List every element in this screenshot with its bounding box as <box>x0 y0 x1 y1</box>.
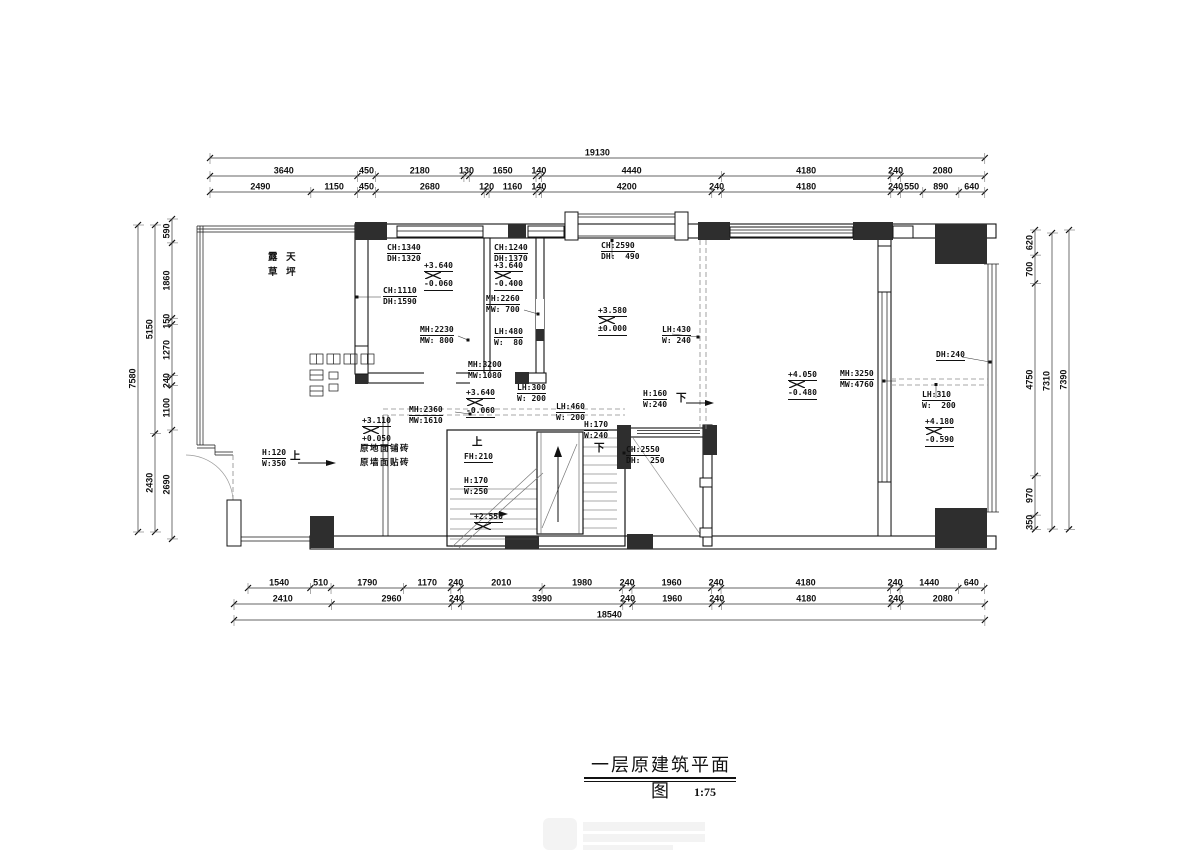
dim-value: 550 <box>904 182 919 192</box>
dim-value: 120 <box>479 182 494 192</box>
dim-value: 2010 <box>491 578 511 588</box>
dim-value: 2680 <box>420 182 440 192</box>
dim-value: 640 <box>964 182 979 192</box>
dim-value: 1160 <box>503 182 523 192</box>
dim-value: 1150 <box>324 182 344 192</box>
dim-value: 590 <box>162 223 172 238</box>
stair-stringer <box>537 432 583 534</box>
dim-value: 2490 <box>250 182 270 192</box>
drawing-scale: 1:75 <box>694 785 716 800</box>
dim-value: 7580 <box>128 368 138 388</box>
dim-value: 3990 <box>532 594 552 604</box>
dim-value: 620 <box>1025 235 1035 250</box>
dim-value: 140 <box>531 166 546 176</box>
dim-value: 1980 <box>572 578 592 588</box>
dim-value: 4180 <box>796 182 816 192</box>
dim-value: 18540 <box>597 610 622 620</box>
dim-value: 19130 <box>585 148 610 158</box>
beams-layer <box>383 240 988 430</box>
dim-value: 7310 <box>1042 371 1052 391</box>
dim-value: 1100 <box>162 398 172 418</box>
dim-value: 240 <box>888 578 903 588</box>
dim-chain-left-mid: 51502430 <box>145 222 162 535</box>
dim-chain-top-row1: 364045021801301650140444041802402080 <box>207 166 988 183</box>
dim-value: 4180 <box>796 166 816 176</box>
dim-value: 2180 <box>410 166 430 176</box>
dim-value: 2410 <box>273 594 293 604</box>
dim-value: 5150 <box>145 319 155 339</box>
terrace-railing <box>984 264 999 512</box>
dim-value: 240 <box>448 578 463 588</box>
dim-value: 240 <box>162 373 172 388</box>
dim-value: 4750 <box>1025 370 1035 390</box>
watermark-text-bars <box>583 818 705 854</box>
dim-value: 450 <box>359 182 374 192</box>
dim-chain-right-mid: 7310 <box>1042 230 1059 532</box>
dim-value: 240 <box>888 166 903 176</box>
dim-value: 350 <box>1025 515 1035 530</box>
dim-value: 240 <box>888 182 903 192</box>
dim-chain-bottom-row1: 1540510179011702402010198024019602404180… <box>245 578 987 595</box>
title-underline-thick <box>584 777 736 779</box>
stair-treads-right <box>583 438 617 528</box>
dim-value: 240 <box>620 578 635 588</box>
dim-value: 510 <box>313 578 328 588</box>
dim-value: 240 <box>709 578 724 588</box>
dim-value: 240 <box>449 594 464 604</box>
dim-value: 700 <box>1025 262 1035 277</box>
dim-value: 1650 <box>493 166 513 176</box>
dim-value: 3640 <box>274 166 294 176</box>
dim-value: 4180 <box>796 578 816 588</box>
dim-chain-left-outer: 7580 <box>128 222 145 535</box>
dim-value: 2960 <box>382 594 402 604</box>
dim-value: 1960 <box>662 578 682 588</box>
dim-chain-bottom-overall: 18540 <box>231 610 988 627</box>
dim-value: 1860 <box>162 271 172 291</box>
small-room-door <box>633 438 712 537</box>
dim-chain-right-outer: 7390 <box>1059 227 1076 532</box>
entry-door <box>186 445 241 546</box>
watermark-logo <box>543 818 723 854</box>
dim-value: 1960 <box>662 594 682 604</box>
dim-value: 640 <box>964 578 979 588</box>
dim-value: 1440 <box>919 578 939 588</box>
dim-value: 240 <box>709 594 724 604</box>
dim-value: 450 <box>359 166 374 176</box>
dim-value: 1170 <box>417 578 437 588</box>
dim-value: 1540 <box>269 578 289 588</box>
dimension-chains: 1913036404502180130165014044404180240208… <box>128 148 1076 627</box>
dim-value: 890 <box>933 182 948 192</box>
terrace-fence <box>197 226 355 445</box>
dim-value: 240 <box>888 594 903 604</box>
dim-value: 7390 <box>1059 370 1069 390</box>
dim-value: 130 <box>459 166 474 176</box>
floor-plan-drawing: 1913036404502180130165014044404180240208… <box>0 0 1200 859</box>
dim-value: 240 <box>620 594 635 604</box>
dim-value: 1790 <box>357 578 377 588</box>
dim-chain-right-inner: 6207004750970350 <box>1025 227 1042 532</box>
dim-value: 2690 <box>162 474 172 494</box>
dim-chain-left-inner: 5901860150127024011002690 <box>162 216 179 542</box>
floorplan-page: 1913036404502180130165014044404180240208… <box>0 0 1200 859</box>
dim-value: 1270 <box>162 340 172 360</box>
dim-value: 2080 <box>933 594 953 604</box>
dim-value: 150 <box>162 314 172 329</box>
dim-chain-top-overall: 19130 <box>207 148 988 165</box>
dim-value: 2430 <box>145 473 155 493</box>
leader-lines <box>356 239 992 455</box>
dim-chain-top-row2: 2490115045026801201160140420024041802405… <box>207 182 988 199</box>
dim-value: 240 <box>709 182 724 192</box>
dim-value: 970 <box>1025 488 1035 503</box>
staircase <box>450 432 617 548</box>
dim-value: 4440 <box>622 166 642 176</box>
dim-value: 2080 <box>933 166 953 176</box>
title-underline-thin <box>584 781 736 782</box>
dim-value: 4180 <box>796 594 816 604</box>
dim-value: 140 <box>531 182 546 192</box>
watermark-mark <box>543 818 577 850</box>
dim-value: 4200 <box>617 182 637 192</box>
dim-chain-bottom-row2: 241029602403990240196024041802402080 <box>231 594 988 611</box>
